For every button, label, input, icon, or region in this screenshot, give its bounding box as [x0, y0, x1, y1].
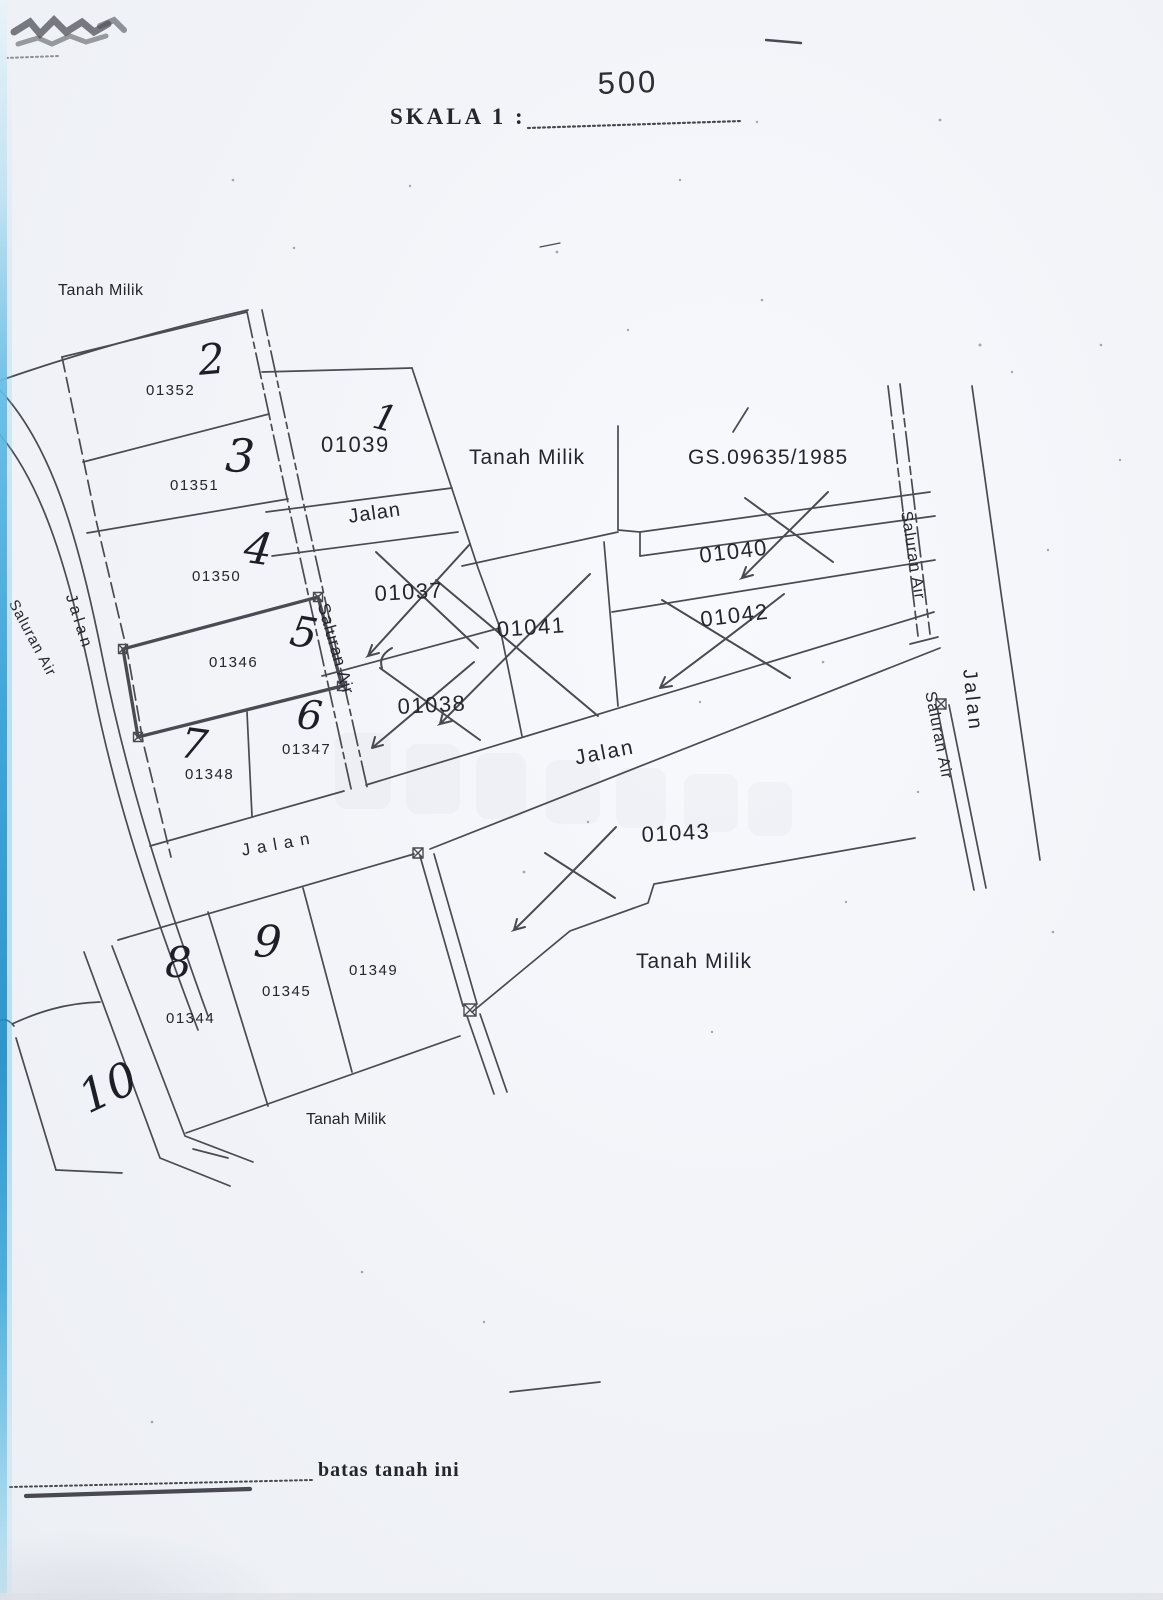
- scan-specks: [151, 119, 1122, 1424]
- scale-value: 500: [597, 64, 659, 102]
- scanned-survey-map-page: SKALA 1 : 500 Tanah Milik Tanah Milik Ta…: [0, 0, 1163, 1600]
- handwritten-no-3: 3: [224, 428, 256, 483]
- legend-lines: [10, 1480, 312, 1496]
- parcel-id-01347: 01347: [282, 741, 331, 758]
- region-label-middle: Tanah Milik: [469, 446, 585, 470]
- parcel-id-01043: 01043: [641, 818, 711, 848]
- parcel-id-01349: 01349: [349, 962, 398, 979]
- central-lower-waterway-lines: [420, 854, 507, 1094]
- legend-boundary-label: batas tanah ini: [318, 1459, 460, 1482]
- map-linework: [0, 0, 1163, 1600]
- region-label-bottom-left: Tanah Milik: [306, 1111, 386, 1129]
- parcel-id-01344: 01344: [166, 1010, 215, 1027]
- document-ref: GS.09635/1985: [688, 446, 848, 470]
- region-label-top-left: Tanah Milik: [58, 282, 144, 300]
- parcel-id-01041: 01041: [496, 612, 566, 643]
- handwritten-no-8: 8: [165, 938, 192, 987]
- parcel-id-01346: 01346: [209, 654, 258, 671]
- handwritten-no-6: 6: [295, 692, 324, 740]
- parcel-id-01350: 01350: [192, 568, 241, 585]
- parcel-id-01345: 01345: [262, 983, 311, 1000]
- parcel-id-01037: 01037: [374, 577, 444, 607]
- parcel-id-01352: 01352: [146, 382, 195, 399]
- stray-scan-lines: [510, 40, 801, 1392]
- scale-label: SKALA 1 :: [390, 104, 526, 130]
- stamp-smudge: [6, 20, 124, 58]
- scan-bottom-edge: [0, 1593, 1163, 1600]
- handwritten-no-2: 2: [196, 334, 227, 385]
- scan-bottom-blotch: [0, 1530, 290, 1600]
- scale-dotted-line: [528, 121, 742, 128]
- region-label-bottom-right: Tanah Milik: [636, 950, 752, 974]
- east-road-line: [972, 386, 1040, 860]
- scan-edge-blue-strip: [0, 0, 7, 1600]
- scan-edge-blue-strip-soft: [7, 0, 12, 1600]
- scan-layer: SKALA 1 : 500 Tanah Milik Tanah Milik Ta…: [0, 0, 1163, 1600]
- parcel-01043-band-boundary: [472, 838, 915, 1012]
- parcel-id-01351: 01351: [170, 477, 219, 494]
- handwritten-no-9: 9: [252, 916, 283, 968]
- parcel-id-01038: 01038: [397, 690, 467, 720]
